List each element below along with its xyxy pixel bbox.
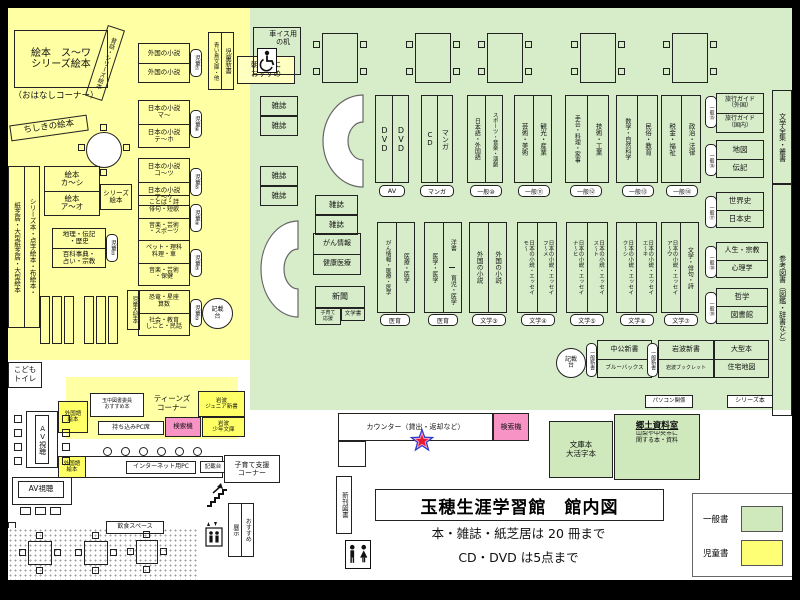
tamachu-osusume-shelf: 玉中図書委員 おすすめ本 bbox=[90, 393, 144, 417]
gaikoku-shosetsu-jido-shelf: 外国の小説外国の小説 bbox=[138, 43, 190, 83]
jido-3-pill: 児童③ bbox=[190, 249, 202, 277]
inshoku-space-label: 飲食スペース bbox=[106, 521, 164, 534]
reading-table bbox=[415, 33, 451, 83]
jido-1-pill: 児童① bbox=[106, 234, 118, 262]
chair bbox=[710, 68, 717, 75]
av-shicho-label: AV視聴 bbox=[18, 481, 64, 498]
chair bbox=[100, 169, 107, 176]
chair bbox=[478, 41, 485, 48]
mochikomi-pc-seat: 持ち込みPC席 bbox=[98, 421, 164, 435]
chair bbox=[618, 68, 625, 75]
chair bbox=[618, 41, 625, 48]
kyodo-shiryo-room: 郷土資料室山梨や中央市に 関する本・資料 bbox=[614, 414, 700, 480]
chair bbox=[406, 68, 413, 75]
jido-2-pill: 児童② bbox=[190, 299, 202, 327]
elevator-icon bbox=[204, 520, 224, 548]
av-pill: AV bbox=[379, 185, 405, 197]
restroom-icon bbox=[345, 540, 369, 567]
chair bbox=[663, 41, 670, 48]
jido-4-pill: 児童④ bbox=[190, 204, 202, 232]
iiku-pill: 医育 bbox=[428, 314, 458, 326]
iwanami-junior-shelf: 岩波 ジュニア新書 bbox=[198, 391, 245, 417]
zasshi-shelf: 雑誌 bbox=[260, 166, 298, 186]
curved-browsing-shelf bbox=[260, 220, 299, 318]
av-shicho-label: AV視聴 bbox=[35, 415, 49, 464]
sekaishi-shelf: 世界史日本史 bbox=[716, 192, 764, 228]
bookshelf bbox=[84, 296, 94, 344]
chair bbox=[313, 68, 320, 75]
kosodate-oen-label: 子育て 応援 bbox=[315, 308, 341, 325]
ippan-13-pill: 一般⑬ bbox=[622, 185, 654, 197]
chair bbox=[14, 443, 22, 451]
chair bbox=[160, 548, 167, 555]
pasokon-kankei-label: パソコン関係 bbox=[645, 395, 693, 408]
counter-desk-leg bbox=[338, 441, 366, 467]
tetsugaku-shelf: 哲学図書館 bbox=[716, 288, 768, 324]
legend-general-label: 一般書 bbox=[703, 513, 729, 525]
chair bbox=[360, 41, 367, 48]
kodomo-toilet: こども トイレ bbox=[8, 362, 42, 388]
chair bbox=[92, 567, 99, 574]
chair bbox=[62, 415, 70, 423]
ehon-shelf: 絵本 カ～シ絵本 ア～オ bbox=[44, 166, 100, 216]
chair bbox=[453, 41, 460, 48]
pet-shelf: ペット・理科 料理・車音楽・芸術 ・保健 bbox=[138, 240, 190, 286]
bookshelf bbox=[64, 296, 74, 344]
chair bbox=[143, 566, 150, 573]
stairs-icon bbox=[205, 482, 229, 508]
star-marker-icon bbox=[408, 427, 436, 455]
jinsei-shinri-shelf: 人生・宗教心理学 bbox=[716, 242, 768, 278]
kotoba-shelf: ことば・詩 俳句・短歌音楽・芸術 ・スポーツ bbox=[138, 195, 190, 241]
zasshi-shelf: 雑誌 bbox=[315, 195, 358, 215]
nihon-essay-na-shelf: 日本の小説・エッセイ ナ～ヒ日本の小説・エッセイ ス～ト bbox=[566, 222, 608, 313]
ippan-11-pill: 一般⑪ bbox=[518, 185, 550, 197]
reading-table bbox=[487, 33, 523, 83]
legend-children-row: 児童書 bbox=[703, 540, 783, 566]
chair bbox=[100, 124, 107, 131]
chair bbox=[75, 549, 82, 556]
chair bbox=[123, 144, 130, 151]
chair bbox=[62, 457, 70, 465]
bookshelf bbox=[40, 296, 50, 344]
bungaku-4-pill: 文学④ bbox=[521, 314, 555, 326]
reading-table bbox=[672, 33, 708, 83]
kamishibai-series-shelf: 紙芝居・大型紙芝居・大型絵本シリーズ本・点字絵本・布絵本・ bbox=[8, 166, 40, 328]
chair bbox=[78, 144, 85, 151]
chair bbox=[20, 507, 31, 515]
legend-general-swatch bbox=[741, 506, 783, 532]
bookshelf bbox=[52, 296, 62, 344]
dvd-shelf: DVDDVD bbox=[375, 95, 409, 183]
legend-box: 一般書 児童書 bbox=[692, 493, 792, 577]
chair bbox=[110, 549, 117, 556]
chair bbox=[54, 549, 61, 556]
reading-table bbox=[580, 33, 616, 83]
zasshi-shelf: 雑誌 bbox=[315, 215, 358, 235]
shinkan-tosho-shelf: 新刊図書 bbox=[336, 476, 352, 534]
internet-pc-label: インターネット用PC bbox=[126, 461, 196, 474]
jido-shinsho-shelf: 青い鳥文庫・他児童新書 bbox=[208, 32, 234, 90]
chair bbox=[14, 415, 22, 423]
geijutsu-kanko-shelf: 芸術・美術観光・産業 bbox=[514, 95, 552, 183]
bungaku-7-pill: 文学⑦ bbox=[664, 314, 698, 326]
rule-books: 本・雑誌・紙芝居は 20 冊まで bbox=[375, 522, 662, 542]
chair bbox=[663, 68, 670, 75]
cd-manga-shelf: CDマンガ bbox=[421, 95, 453, 183]
shinbun-shelf: 新聞 bbox=[315, 286, 365, 308]
zasshi-shelf: 雑誌 bbox=[260, 96, 298, 116]
sanko-tosho-shelf: 参考図書（図鑑・辞書など） bbox=[772, 184, 792, 416]
chuko-shinsho-shelf: 中公新書ブルーバックス bbox=[597, 340, 652, 378]
chair bbox=[525, 68, 532, 75]
kisaidai-desk: 記載 台 bbox=[202, 298, 233, 329]
kisaidai-desk: 記載 台 bbox=[556, 348, 586, 378]
nihon-essay-a-shelf: 日本の小説・エッセイ ア～ウ文学・俳句・詩 bbox=[661, 222, 699, 313]
chair bbox=[14, 457, 22, 465]
bookshelf bbox=[96, 296, 106, 344]
ippan-shinsho-pill: 一般新書 bbox=[647, 343, 658, 377]
nihon-shosetsu-ma-shelf: 日本の小説 マ～日本の小説 テ～ホ bbox=[138, 100, 190, 148]
chiri-denki-shelf: 地理・伝記 ・歴史百科事典・ 占い・宗教 bbox=[52, 228, 106, 268]
legend-children-swatch bbox=[741, 540, 783, 566]
rule-cd-dvd: CD・DVD は5点まで bbox=[375, 546, 662, 566]
chair bbox=[525, 41, 532, 48]
ogata-jutaku-shelf: 大型本住宅地図 bbox=[714, 340, 769, 378]
chair bbox=[92, 532, 99, 539]
ippan-16-pill: 一般⑯ bbox=[705, 144, 717, 176]
chair bbox=[19, 549, 26, 556]
eating-table bbox=[84, 541, 108, 565]
zasshi-shelf: 雑誌 bbox=[260, 186, 298, 206]
series-ehon-shelf: シリーズ 絵本 bbox=[100, 184, 132, 210]
legend-general-row: 一般書 bbox=[703, 506, 783, 532]
chair bbox=[571, 68, 578, 75]
ippan-15-pill: 一般⑮ bbox=[705, 96, 717, 128]
ippan-12-pill: 一般⑫ bbox=[570, 185, 602, 197]
map-title: 玉穂生涯学習館 館内図 bbox=[375, 489, 664, 521]
chair bbox=[571, 41, 578, 48]
chair bbox=[62, 429, 70, 437]
osusume-tenji-board: 展示おすすめ bbox=[228, 503, 254, 557]
igaku-yosho-shelf: 医学・医学洋書育児・医学 bbox=[424, 222, 462, 313]
gaikoku-shosetsu-shelf: 外国の小説外国の小説 bbox=[469, 222, 507, 313]
kensakuki-terminal: 検索機 bbox=[165, 417, 201, 437]
teens-corner-label: ティーンズ コーナー bbox=[146, 391, 198, 417]
gogaku-sports-shelf: 日本語・外国語スポーツ・音楽・演劇 bbox=[467, 95, 503, 183]
stool bbox=[139, 447, 148, 456]
chair bbox=[143, 531, 150, 538]
stool bbox=[121, 447, 130, 456]
kisaidai-label: 記載台 bbox=[200, 461, 226, 473]
eating-table bbox=[28, 541, 52, 565]
bungaku-3-pill: 文学③ bbox=[472, 314, 506, 326]
manga-pill: マンガ bbox=[420, 185, 454, 197]
bunko-ogata-shelf: 文庫本 大活字本 bbox=[549, 421, 613, 478]
nihon-essay-ku-shelf: 日本の小説・エッセイ ク～シ日本の小説・エッセイ エ～キ bbox=[616, 222, 657, 313]
shugei-gijutsu-shelf: 手芸・料理・家事技術・工業 bbox=[565, 95, 609, 183]
curved-browsing-shelf bbox=[322, 94, 364, 188]
jido-5-pill: 児童⑤ bbox=[190, 168, 202, 196]
chair bbox=[453, 68, 460, 75]
eating-table bbox=[136, 540, 158, 564]
kensakuki-terminal: 検索機 bbox=[493, 413, 529, 441]
gan-iryo-shelf: がん情報・医療・医学医療・医学 bbox=[377, 222, 415, 313]
reading-table bbox=[322, 33, 358, 83]
reading-table-round bbox=[86, 132, 122, 168]
bungaku-5-pill: 文学⑤ bbox=[570, 314, 604, 326]
ippan-19-pill: 一般⑲ bbox=[705, 292, 717, 324]
ippan-14-pill: 一般⑭ bbox=[666, 185, 698, 197]
series-bon-label: シリーズ本 bbox=[727, 395, 773, 408]
chair bbox=[35, 507, 46, 515]
iwanami-shinsho-shelf: 岩波新書岩波ブックレット bbox=[658, 340, 714, 378]
chair bbox=[710, 41, 717, 48]
legend-children-label: 児童書 bbox=[703, 547, 729, 559]
bungaku-zenshu-shelf: 文学全集・叢書 bbox=[772, 90, 792, 184]
iwanami-shonen-shelf: 岩波 少年文庫 bbox=[202, 417, 245, 437]
zasshi-shelf: 雑誌 bbox=[260, 116, 298, 136]
chair bbox=[360, 68, 367, 75]
chair bbox=[406, 41, 413, 48]
sugaku-minzoku-shelf: 数学・自然科学民俗・教育 bbox=[616, 95, 658, 183]
ryoko-guide-shelf: 旅行ガイド （外国）旅行ガイド （国内） bbox=[716, 93, 764, 133]
ippan-18-pill: 一般⑱ bbox=[705, 246, 717, 278]
chizu-denki-shelf: 地図伝記 bbox=[716, 140, 764, 178]
chair bbox=[313, 41, 320, 48]
ippan-shinsho-pill: 一般新書 bbox=[586, 343, 597, 377]
kyoryu-shelf: 恐竜・星座 算数社会・教育 しごと・民話 bbox=[138, 290, 190, 336]
chair bbox=[36, 567, 43, 574]
stool bbox=[157, 447, 166, 456]
jido-6-pill: 児童⑥ bbox=[190, 110, 202, 138]
wheelchair-icon bbox=[257, 48, 275, 71]
iiku-pill: 医育 bbox=[380, 314, 410, 326]
gan-joho-shelf: がん情報健康医療 bbox=[313, 233, 361, 275]
stool bbox=[193, 447, 202, 456]
kosodate-shien-corner: 子育て支援 コーナー bbox=[224, 455, 280, 483]
chair bbox=[478, 68, 485, 75]
stool bbox=[175, 447, 184, 456]
nihon-essay-mo-shelf: 日本の小説・エッセイ モ～日本の小説・エッセイ フ～メ bbox=[517, 222, 557, 313]
chair bbox=[62, 443, 70, 451]
bookshelf bbox=[108, 296, 118, 344]
bungakusho-label: 文学書 bbox=[341, 308, 365, 321]
page: { "title": { "main": "玉穂生涯学習館 館内図", "rul… bbox=[0, 0, 800, 600]
zeikin-seiji-shelf: 税金・福祉政治・法律 bbox=[661, 95, 701, 183]
chair bbox=[36, 532, 43, 539]
bungaku-6-pill: 文学⑥ bbox=[620, 314, 654, 326]
floor-map: 絵本 ス～ワ シリーズ絵本（おはなしコーナー）昔話・シリーズ絵本ちしきの絵本紙芝… bbox=[8, 8, 792, 580]
chair bbox=[14, 429, 22, 437]
stool bbox=[103, 447, 112, 456]
chair bbox=[127, 548, 134, 555]
ippan-10-pill: 一般⑩ bbox=[470, 185, 502, 197]
jido-7-pill: 児童⑦ bbox=[190, 49, 202, 77]
ippan-17-pill: 一般⑰ bbox=[705, 196, 717, 228]
chair bbox=[50, 507, 61, 515]
